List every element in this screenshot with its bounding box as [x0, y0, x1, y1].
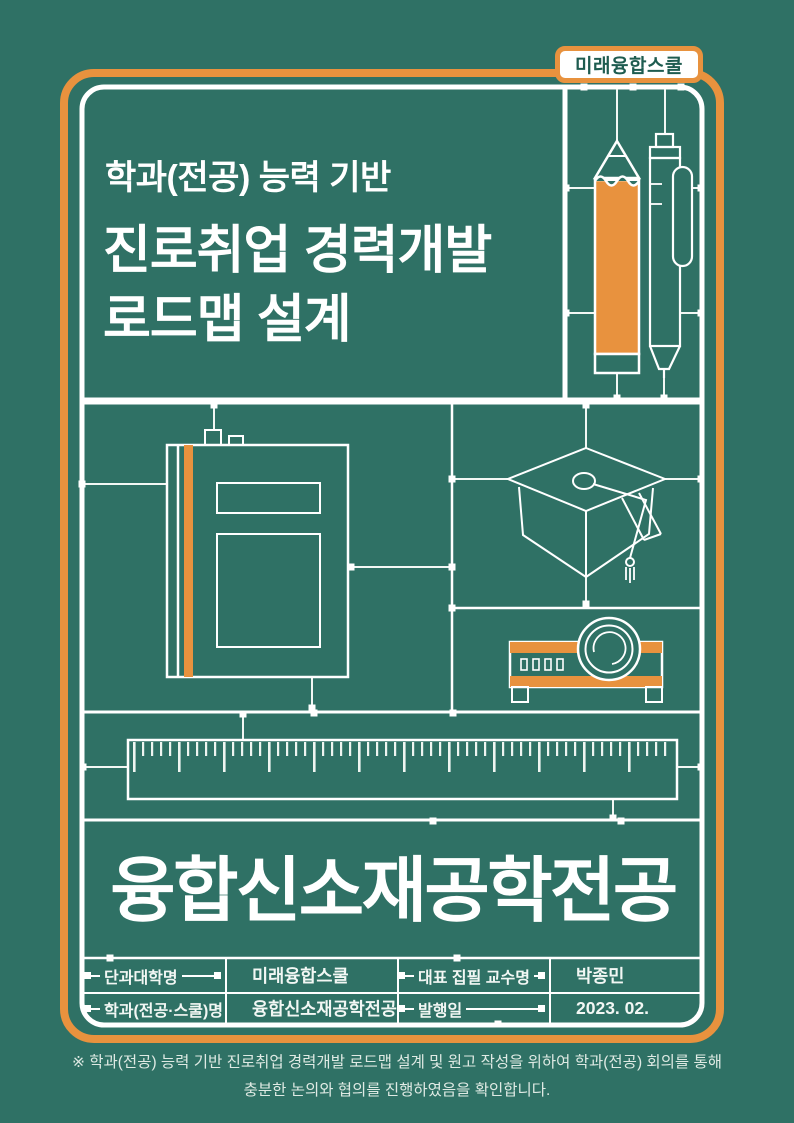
table-value-college: 미래융합스쿨 — [226, 958, 398, 993]
projector-icon — [510, 618, 662, 702]
notebook-icon — [167, 430, 348, 677]
title-line-1: 진로취업 경력개발 — [103, 217, 491, 286]
table-value-professor: 박종민 — [550, 958, 702, 993]
pen-icon — [650, 134, 692, 378]
footer-note-line-1: ※ 학과(전공) 능력 기반 진로취업 경력개발 로드맵 설계 및 원고 작성을… — [0, 1049, 794, 1077]
sprue-node — [538, 972, 545, 979]
sprue-node — [398, 1005, 405, 1012]
table-value-issue-date: 2023. 02. — [550, 993, 702, 1024]
info-table: 단과대학명 미래융합스쿨 대표 집필 교수명 박종민 학과(전공·스쿨)명 융합… — [84, 958, 702, 1024]
sprue-node — [398, 972, 405, 979]
major-name: 융합신소재공학전공 — [84, 842, 702, 942]
table-label-college: 단과대학명 — [84, 958, 226, 993]
footer-note-line-2: 충분한 논의와 협의를 진행하였음을 확인합니다. — [0, 1077, 794, 1105]
table-label-professor: 대표 집필 교수명 — [398, 958, 550, 993]
sprue-node — [538, 1005, 545, 1012]
title-block: 학과(전공) 능력 기반 진로취업 경력개발 로드맵 설계 — [103, 150, 491, 355]
table-label-issue-date: 발행일 — [398, 993, 550, 1024]
graduation-cap-icon — [508, 448, 665, 583]
sprue-node — [214, 972, 221, 979]
table-label-department: 학과(전공·스쿨)명 — [84, 993, 226, 1024]
sprue-node — [84, 1005, 91, 1012]
table-value-department: 융합신소재공학전공 — [226, 993, 398, 1024]
ruler-icon — [128, 740, 677, 800]
school-badge-label: 미래융합스쿨 — [575, 51, 683, 78]
footer-note: ※ 학과(전공) 능력 기반 진로취업 경력개발 로드맵 설계 및 원고 작성을… — [0, 1049, 794, 1105]
title-line-2: 로드맵 설계 — [103, 286, 491, 355]
pencil-icon — [595, 141, 639, 373]
poster-page: 미래융합스쿨 학과(전공) 능력 기반 진로취업 경력개발 로드맵 설계 융합신… — [0, 0, 794, 1123]
school-badge: 미래융합스쿨 — [555, 46, 703, 83]
title-eyebrow: 학과(전공) 능력 기반 — [105, 150, 491, 199]
sprue-node — [84, 972, 91, 979]
